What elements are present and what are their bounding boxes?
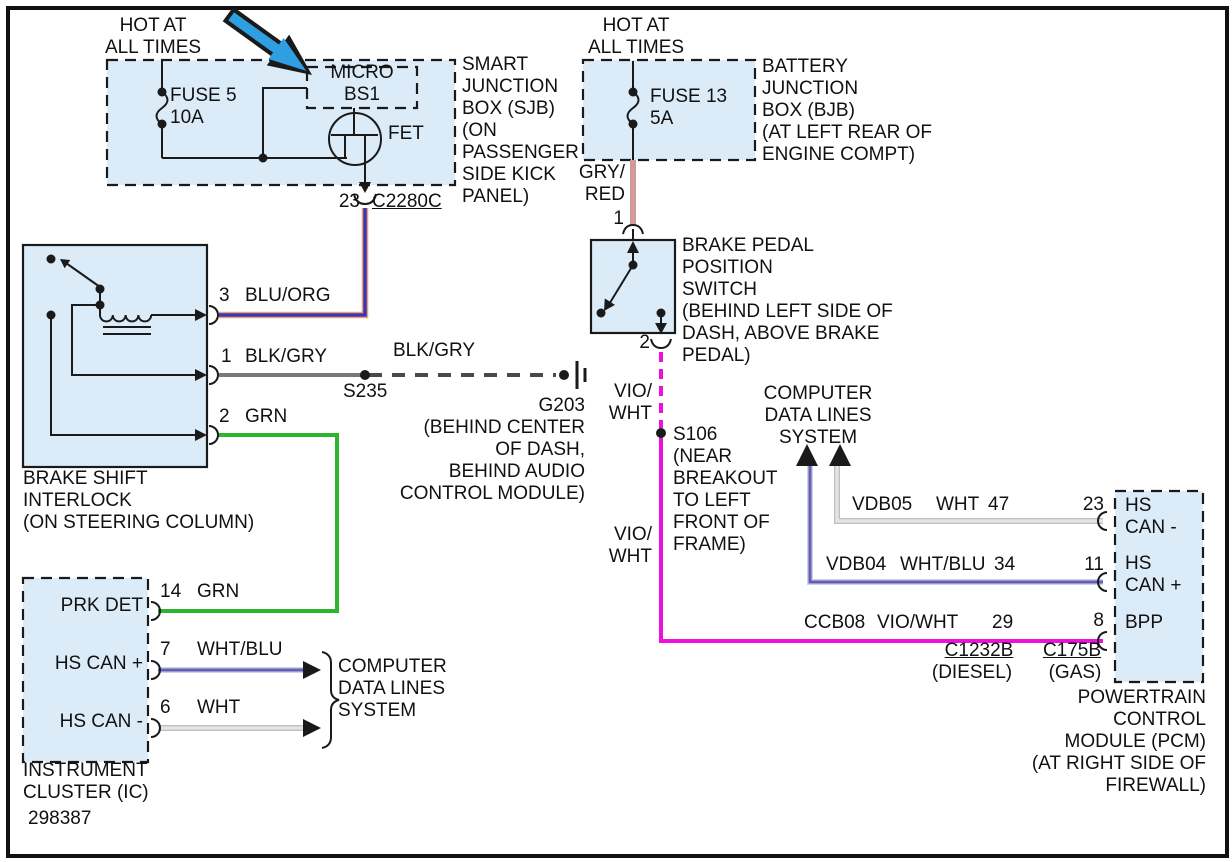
pcm-pin-23: 23 [1083,494,1104,516]
interlock-pin3-color: BLU/ORG [245,285,331,307]
ground-g203-symbol [559,361,585,389]
splice-s106 [656,428,666,438]
hot-at-right-label: HOT AT [603,15,670,37]
connector-c175b-sub: (GAS) [1049,662,1102,684]
connector-c1232b-sub: (DIESEL) [932,662,1012,684]
pcm-pin-label: CAN + [1125,575,1182,597]
s106-label-line: S106 [673,424,717,446]
connector-c1232b: C1232B [945,640,1014,662]
s106-label-line: FRONT OF [673,512,770,534]
bpp-pin2-number: 2 [639,332,650,354]
pcm-name-line: (AT RIGHT SIDE OF [1032,753,1206,775]
cdl-bottom-line: COMPUTER [338,656,447,678]
cdl-top-line: DATA LINES [765,405,872,427]
ic-pin14-number: 14 [160,581,181,603]
fuse13-name: FUSE 13 [650,86,727,108]
bs1-label: BS1 [344,84,380,106]
cdl-top-line: SYSTEM [779,427,857,449]
pcm-name-line: FIREWALL) [1105,775,1206,797]
sjb-name-line: BOX (SJB) [462,98,555,120]
bpp-name-line: POSITION [682,257,773,279]
circuit-ccb08-color: VIO/WHT [877,612,958,634]
hot-at-right-label2: ALL TIMES [588,37,684,59]
ic-pin-hs-can-minus: HS CAN - [60,711,143,733]
connector-c2280c: C2280C [372,191,442,213]
fuse13-rating: 5A [650,108,673,130]
bjb-name-line: ENGINE COMPT) [762,144,915,166]
fuse5-name: FUSE 5 [170,85,237,107]
wire-wht-blu-ic [158,661,321,679]
g203-label-line: (BEHIND CENTER [423,417,585,439]
circuit-ccb08: CCB08 [804,612,865,634]
cdl-brace [322,652,339,748]
pcm-pin-label: CAN - [1125,517,1177,539]
ic-pin7-color: WHT/BLU [197,639,283,661]
cdl-bottom-line: SYSTEM [338,700,416,722]
wire-wht-ic [158,719,321,737]
sjb-name-line: (ON [462,120,497,142]
pcm-pin-label: BPP [1125,612,1163,634]
wiring-diagram-page: HOT AT ALL TIMES FUSE 5 10A MICRO BS1 FE… [0,0,1232,862]
interlock-pin2-number: 2 [219,406,230,428]
ic-pin-prk-det: PRK DET [61,595,143,617]
circuit-vdb05-pin-left: 47 [988,494,1009,516]
sjb-name-line: PANEL) [462,186,529,208]
connector-c175b: C175B [1043,640,1101,662]
circuit-vdb04-pin-left: 34 [994,554,1015,576]
interlock-pin1-color: BLK/GRY [245,346,327,368]
bpp-pin2-connector [651,339,671,348]
hot-at-left-label: HOT AT [120,15,187,37]
sjb-pin-number: 23 [339,191,360,213]
sjb-name-line: JUNCTION [462,76,558,98]
fet-label: FET [388,123,424,145]
bjb-name-line: BOX (BJB) [762,100,855,122]
bjb-name-line: BATTERY [762,56,848,78]
sjb-name-line: PASSENGER [462,142,579,164]
interlock-pin1-connector [209,366,218,384]
wire-color-blk-gry: BLK/GRY [393,340,475,362]
pcm-pin-11: 11 [1084,554,1104,576]
interlock-pin2-color: GRN [245,406,287,428]
cdl-top-line: COMPUTER [764,383,873,405]
interlock-pin1-number: 1 [221,346,232,368]
interlock-pin3-number: 3 [219,285,230,307]
ic-name-line: INSTRUMENT [23,760,148,782]
wire-color-vio-wht-2: VIO/ [614,524,652,546]
micro-label: MICRO [330,62,393,84]
pcm-name-line: POWERTRAIN [1078,687,1206,709]
pcm-pin-8: 8 [1093,610,1104,632]
bjb-name-line: (AT LEFT REAR OF [762,122,932,144]
ic-name-line: CLUSTER (IC) [23,782,149,804]
interlock-pin3-connector [209,306,218,324]
interlock-pin2-connector [209,426,218,444]
interlock-name-line: (ON STEERING COLUMN) [23,512,254,534]
wire-color-vio-wht-1: VIO/ [614,381,652,403]
sjb-name-line: SIDE KICK [462,164,556,186]
s106-label-line: (NEAR [673,446,732,468]
g203-label-line: OF DASH, [495,439,585,461]
bpp-name-line: PEDAL) [682,345,751,367]
s106-label-line: BREAKOUT [673,468,778,490]
cdl-bottom-line: DATA LINES [338,678,445,700]
bjb-name-line: JUNCTION [762,78,858,100]
ic-pin-hs-can-plus: HS CAN + [55,653,143,675]
circuit-vdb04-color: WHT/BLU [900,554,986,576]
wire-color-gry-red2: RED [585,184,625,206]
g203-label-line: CONTROL MODULE) [400,483,585,505]
ic-pin6-color: WHT [197,697,240,719]
bpp-name-line: (BEHIND LEFT SIDE OF [682,301,893,323]
sjb-name-line: SMART [462,54,528,76]
interlock-name-line: BRAKE SHIFT [23,468,148,490]
wire-color-vio-wht-1b: WHT [609,403,652,425]
pcm-pin-label: HS [1125,553,1151,575]
bpp-name-line: DASH, ABOVE BRAKE [682,323,879,345]
g203-label-line: BEHIND AUDIO [449,461,585,483]
wire-color-vio-wht-2b: WHT [609,546,652,568]
pcm-pin-label: HS [1125,495,1151,517]
wire-color-gry-red: GRY/ [579,162,625,184]
bpp-name-line: BRAKE PEDAL [682,235,814,257]
ic-pin6-number: 6 [160,697,171,719]
circuit-vdb05: VDB05 [852,494,912,516]
g203-label-line: G203 [539,395,585,417]
fuse5-rating: 10A [170,107,204,129]
bpp-pin1-number: 1 [613,208,624,230]
hot-at-left-label2: ALL TIMES [105,37,201,59]
bpp-name-line: SWITCH [682,279,757,301]
circuit-ccb08-pin-left: 29 [992,612,1013,634]
pcm-name-line: CONTROL [1113,709,1206,731]
circuit-vdb04: VDB04 [826,554,886,576]
interlock-name-line: INTERLOCK [23,490,132,512]
splice-s235-label: S235 [343,381,387,403]
ic-pin14-color: GRN [197,581,239,603]
pcm-name-line: MODULE (PCM) [1065,731,1206,753]
s106-label-line: TO LEFT [673,490,751,512]
ic-pin7-number: 7 [160,639,171,661]
diagram-graphics [0,0,1232,862]
splice-s235 [360,370,370,380]
sheet-number: 298387 [28,808,91,830]
circuit-vdb05-color: WHT [936,494,979,516]
s106-label-line: FRAME) [673,534,746,556]
